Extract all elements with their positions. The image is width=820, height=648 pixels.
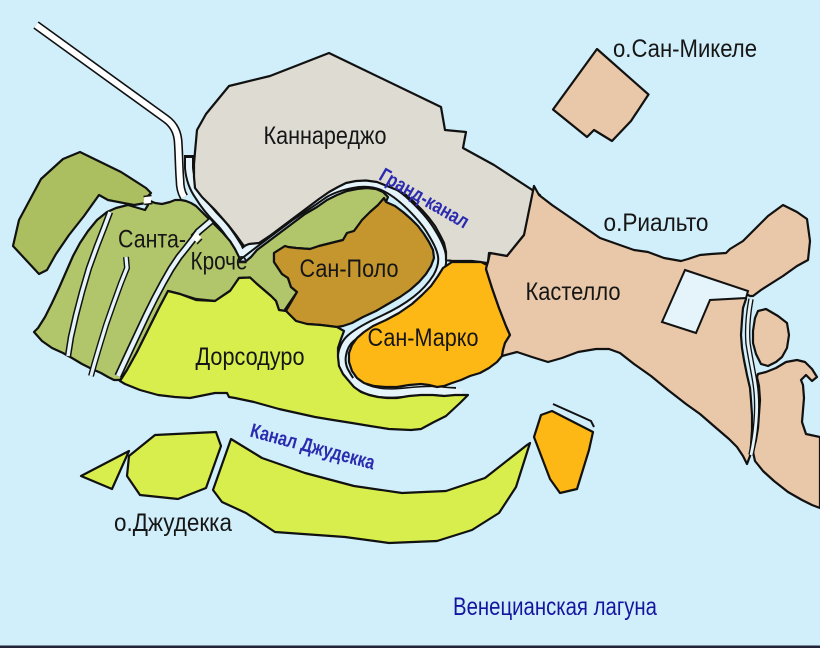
svg-text:Каннареджо: Каннареджо [264, 122, 387, 150]
svg-text:Кроче: Кроче [191, 248, 248, 276]
svg-text:Сан-Марко: Сан-Марко [368, 324, 479, 352]
svg-text:о.Джудекка: о.Джудекка [114, 509, 232, 537]
svg-text:Санта-: Санта- [118, 226, 186, 254]
svg-text:Дорсодуро: Дорсодуро [196, 343, 305, 371]
svg-text:о.Сан-Микеле: о.Сан-Микеле [613, 35, 757, 63]
svg-text:о.Риальто: о.Риальто [604, 209, 709, 237]
svg-text:Венецианская лагуна: Венецианская лагуна [453, 593, 657, 621]
svg-text:Кастелло: Кастелло [526, 278, 621, 306]
svg-text:Сан-Поло: Сан-Поло [300, 255, 399, 283]
